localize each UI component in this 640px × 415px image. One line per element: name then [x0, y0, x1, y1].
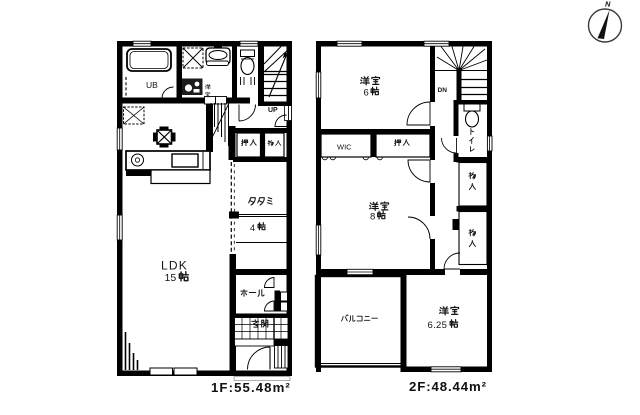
svg-text:1F:55.48m²: 1F:55.48m² [211, 380, 291, 395]
svg-text:15: 15 [165, 272, 177, 284]
svg-text:LDK: LDK [161, 259, 188, 273]
svg-text:6: 6 [364, 88, 369, 99]
svg-text:2F:48.44m²: 2F:48.44m² [409, 379, 487, 394]
svg-text:DN: DN [438, 87, 448, 94]
svg-text:WIC: WIC [337, 143, 352, 152]
svg-text:N: N [605, 0, 611, 9]
svg-text:UB: UB [146, 80, 158, 90]
svg-text:6.25: 6.25 [428, 320, 448, 331]
svg-text:UP: UP [268, 107, 278, 114]
svg-text:8: 8 [370, 212, 375, 223]
svg-text:4: 4 [250, 223, 255, 233]
